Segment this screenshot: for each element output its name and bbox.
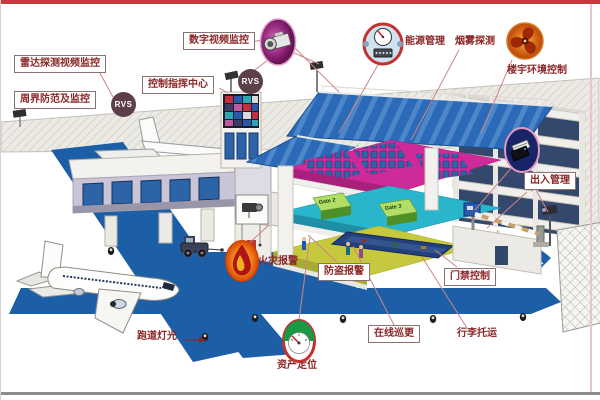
surveillance-camera-icon	[259, 17, 297, 67]
access-card-reader-icon	[503, 126, 541, 174]
label-energy: 能源管理	[405, 37, 445, 47]
label-digital-video: 数字视频监控	[183, 32, 255, 50]
label-control-center: 控制指挥中心	[142, 76, 214, 94]
label-runway-light: 跑道灯光	[137, 332, 177, 342]
label-building-env: 楼宇环境控制	[507, 66, 567, 76]
label-access-mgmt: 出入管理	[524, 172, 576, 190]
label-door-access: 门禁控制	[444, 268, 496, 286]
roof-camera-icon	[310, 61, 324, 92]
label-burglar-alarm: 防盗报警	[318, 263, 370, 281]
asset-gauge-icon	[282, 319, 316, 363]
label-fire-alarm: 火灾报警	[258, 257, 298, 267]
top-frame-bar	[1, 0, 600, 4]
right-frame-edge	[590, 4, 592, 392]
rooftop-camera-icon	[225, 71, 239, 81]
label-radar-video: 雷达探测视频监控	[14, 55, 106, 73]
fire-flame-icon	[224, 239, 260, 283]
rvs-badge: RVS	[238, 69, 263, 94]
label-smoke: 烟雾探测	[455, 37, 495, 47]
label-baggage: 行李托运	[457, 329, 497, 339]
chain-link-fence	[557, 220, 600, 332]
diagram-canvas: Gate 2 Gate 3	[0, 0, 600, 400]
energy-meter-icon	[362, 22, 404, 66]
label-perimeter: 周界防范及监控	[14, 91, 96, 109]
rvs-badge: RVS	[111, 92, 136, 117]
ventilation-fan-icon	[505, 21, 545, 61]
label-online-patrol: 在线巡更	[368, 325, 420, 343]
bottom-frame-bar	[1, 392, 600, 395]
